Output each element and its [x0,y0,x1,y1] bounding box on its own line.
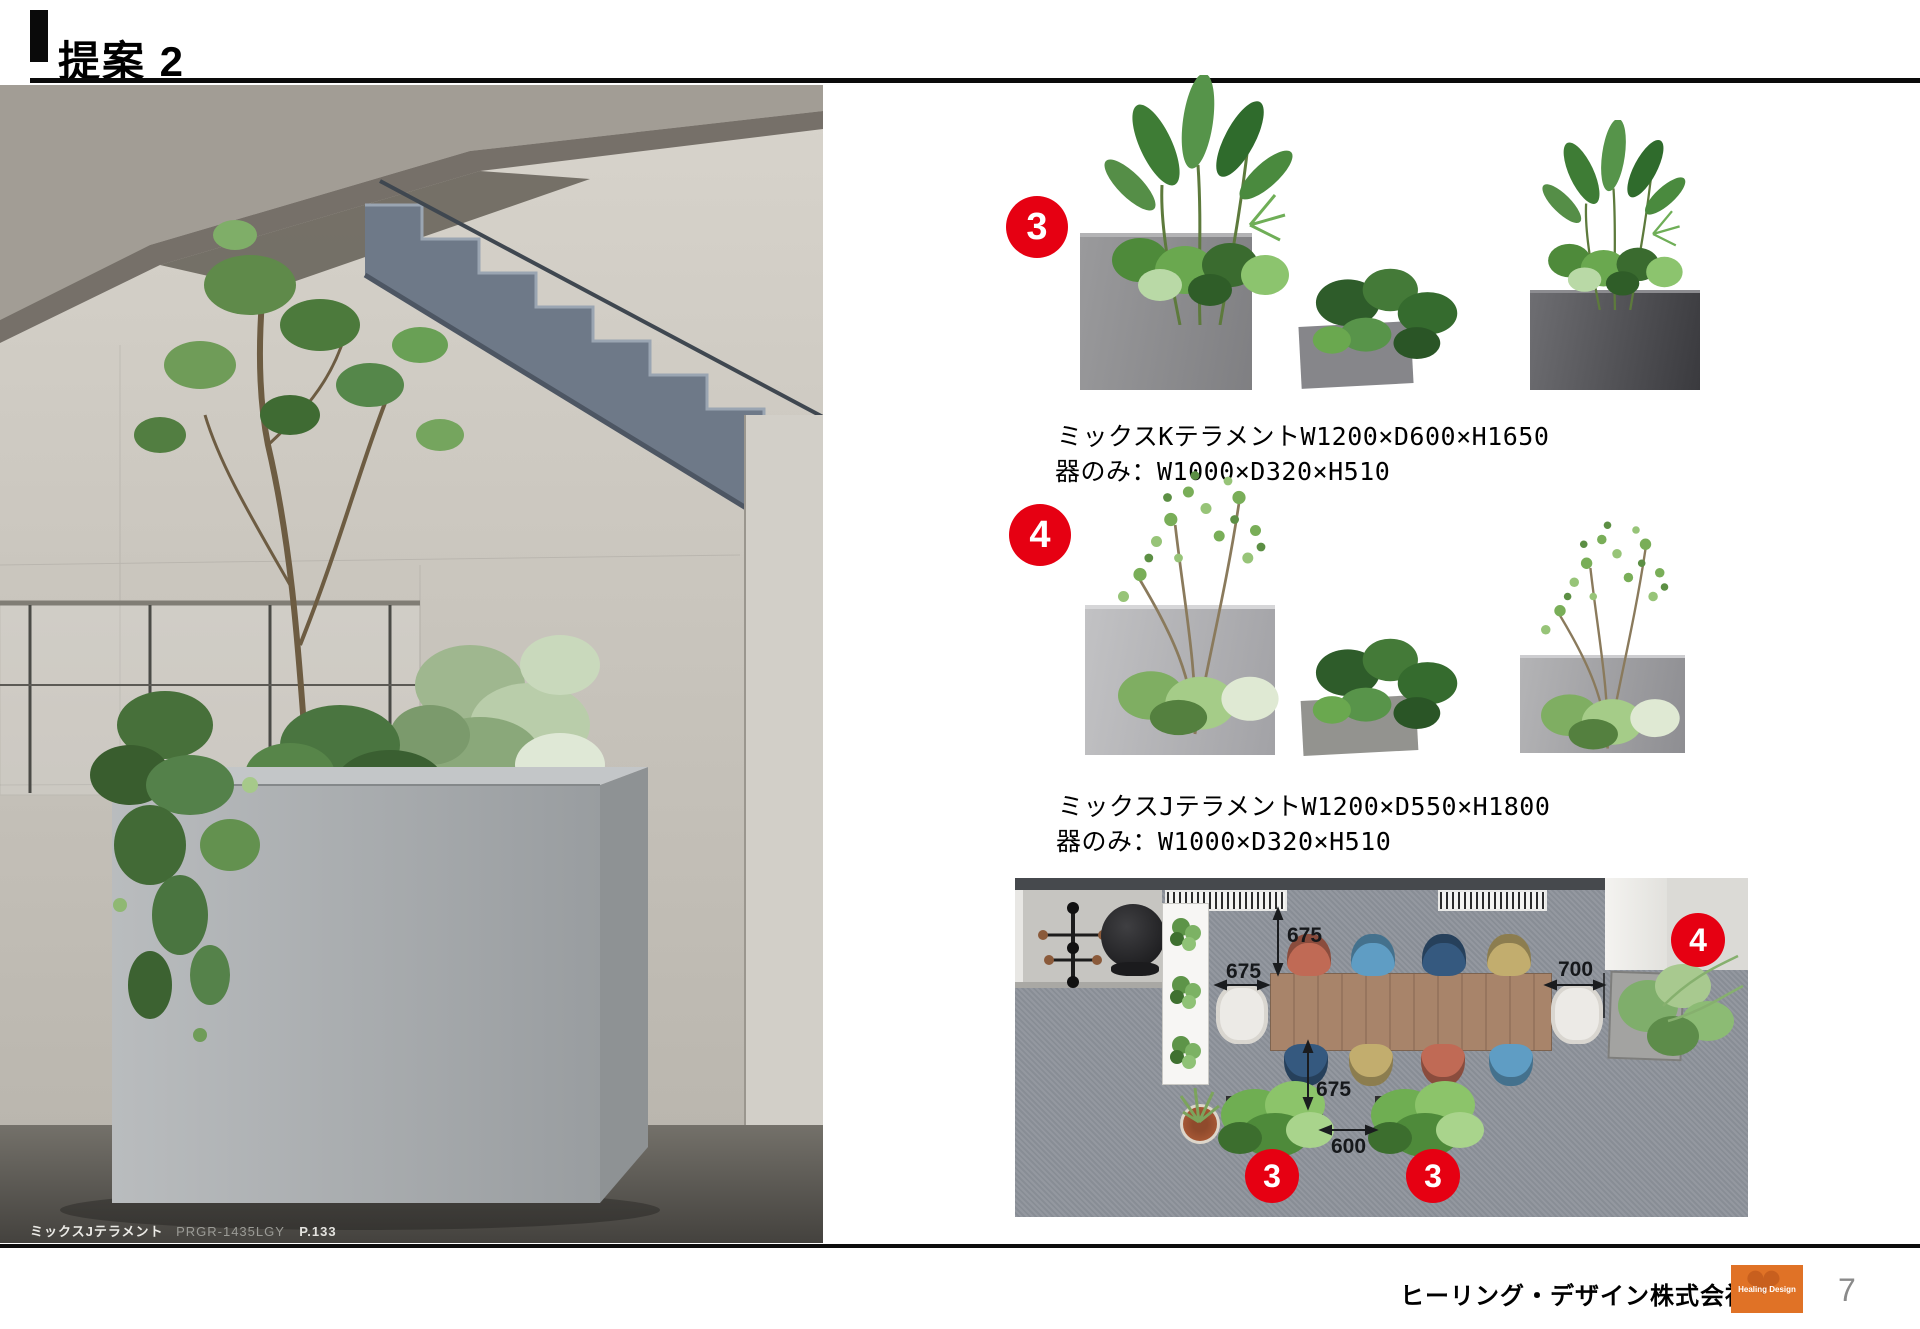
slide-page: 提案 2 [0,0,1920,1329]
healing-design-logo: ❤ Healing Design [1731,1265,1803,1313]
dim-gap-span: 600 [1331,1135,1366,1159]
hero-photo: ミックスJテラメント PRGR-1435LGY P.133 [0,85,823,1243]
product-4-plants [1065,415,1325,745]
footer-divider [0,1244,1920,1248]
dim-bottom-span: 675 [1316,1078,1351,1102]
title-accent-bar [30,10,48,62]
product-3-image-alt [1495,128,1720,392]
caption-product-code: PRGR-1435LGY [176,1224,285,1239]
dim-top-span: 675 [1287,924,1322,948]
product-3-detail-leaves [1300,228,1470,388]
photo-caption: ミックスJテラメント PRGR-1435LGY P.133 [30,1221,337,1240]
plan-marker-4-number: 4 [1689,922,1707,959]
logo-text: Healing Design [1738,1285,1796,1294]
plan-marker-3a-number: 3 [1263,1158,1281,1195]
marker-3-number: 3 [1026,206,1047,249]
dim-right-span: 700 [1558,958,1593,982]
dim-left-span: 675 [1226,960,1261,984]
floor-plan: 675 675 700 675 600 3 3 4 [1015,878,1748,1217]
company-name: ヒーリング・デザイン株式会社 [1400,1276,1700,1311]
plan-marker-3b-number: 3 [1424,1158,1442,1195]
product-4-alt-plants [1495,473,1720,758]
title-underline [30,78,1920,83]
hero-photo-scene [0,85,823,1243]
plan-marker-3a: 3 [1245,1149,1299,1203]
plan-marker-3b: 3 [1406,1149,1460,1203]
caption-page-ref: P.133 [299,1224,336,1239]
product-3-alt-plants [1515,120,1715,310]
dimension-arrows [1015,878,1748,1217]
pillar [745,415,823,1145]
product-4-name-dims: ミックスJテラメントW1200×D550×H1800 [1058,787,1550,823]
product-4-vessel-dims: 器のみ：W1000×D320×H510 [1056,822,1391,858]
product-4-image-detail [1300,598,1470,758]
caption-product-name: ミックスJテラメント [30,1224,163,1239]
product-4-image-main [1050,420,1340,760]
product-3-image-detail [1300,228,1470,388]
product-3-image-main [1050,75,1330,395]
plan-marker-4: 4 [1671,913,1725,967]
marker-4-number: 4 [1029,514,1050,557]
product-3-plants [1060,75,1340,325]
page-number: 7 [1838,1272,1856,1309]
product-4-image-alt [1480,488,1710,758]
product-4-detail-leaves [1300,598,1470,758]
